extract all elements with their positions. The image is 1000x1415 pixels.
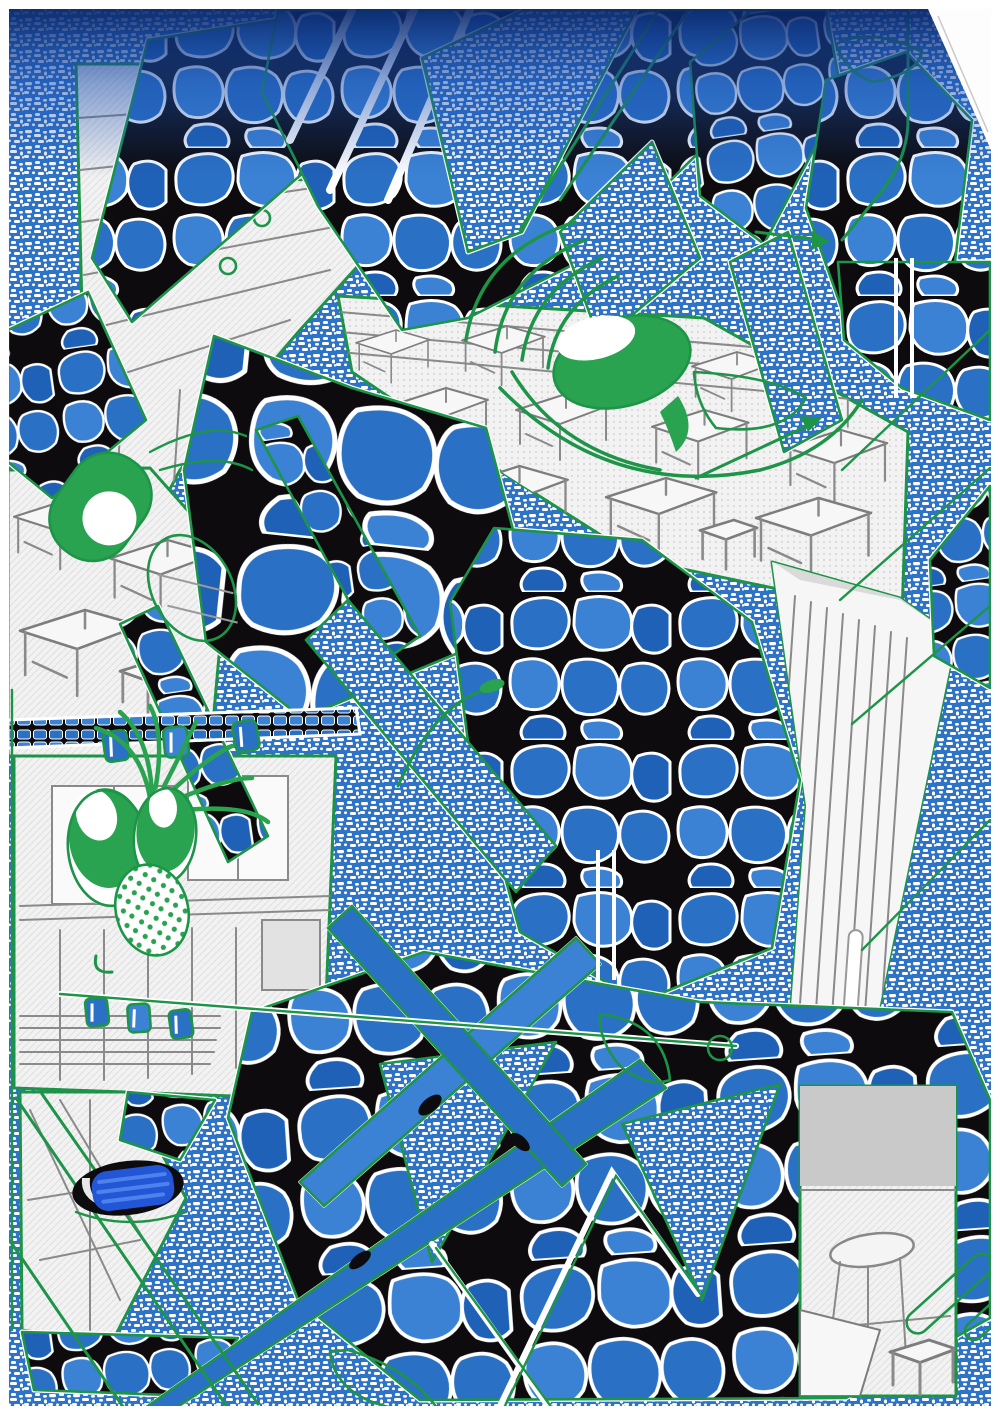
classroom-window-bottomright bbox=[800, 1086, 956, 1397]
artwork-page bbox=[0, 0, 1000, 1415]
top-navy-gradient bbox=[8, 8, 992, 178]
artwork-canvas bbox=[0, 0, 1000, 1415]
